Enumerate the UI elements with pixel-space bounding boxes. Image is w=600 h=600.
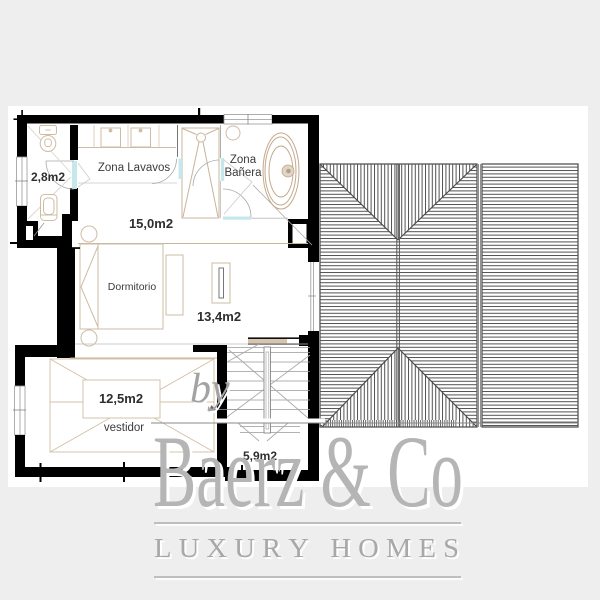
svg-text:Zona Lavavos: Zona Lavavos [98, 162, 170, 174]
svg-text:15,0m2: 15,0m2 [129, 216, 173, 231]
svg-text:2,8m2: 2,8m2 [31, 170, 65, 184]
svg-text:Dormitorio: Dormitorio [108, 281, 157, 293]
svg-text:Baerz & Co: Baerz & Co [153, 415, 463, 529]
svg-text:12,5m2: 12,5m2 [99, 391, 143, 406]
svg-text:Zona: Zona [230, 154, 257, 166]
svg-text:Bañera: Bañera [224, 167, 262, 179]
svg-text:vestidor: vestidor [104, 422, 144, 434]
svg-text:by: by [190, 366, 230, 412]
svg-text:L U X U R Y H O M E S: L U X U R Y H O M E S [154, 533, 459, 563]
svg-text:13,4m2: 13,4m2 [197, 309, 241, 324]
